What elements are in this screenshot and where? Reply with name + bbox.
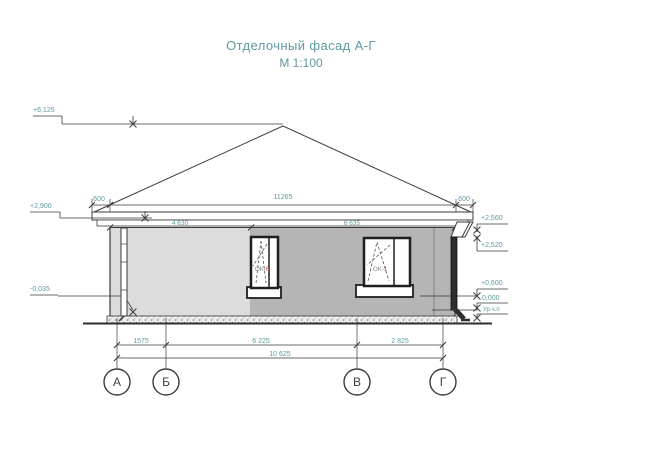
elevation-label-fascia-top: +2,560	[481, 215, 503, 223]
wall-left-section	[110, 227, 250, 316]
dim-wall-left-segment: 4 630	[155, 220, 205, 228]
elevation-label-window-sill: +0,600	[481, 280, 503, 288]
axis-bubble-v: В	[344, 369, 370, 395]
plinth-strip	[107, 316, 457, 323]
drawing-title: Отделочный фасад А-Г	[181, 38, 421, 53]
window-tag-ok6-suffix: -6	[264, 266, 270, 273]
window-tag-ok1-prefix: ОК	[373, 266, 382, 273]
drawing-scale: М 1:100	[181, 56, 421, 70]
axis-bubble-b: Б	[153, 369, 179, 395]
elevation-label-floor: 0,000	[482, 295, 500, 303]
drawing-linework	[0, 0, 663, 469]
window-tag-ok1-suffix: -1	[382, 266, 388, 273]
dim-building-span: 11265	[253, 194, 313, 202]
dim-a-b: 1575	[121, 338, 161, 346]
dim-total: 10 625	[258, 351, 302, 359]
elevation-label-floor-note: Ур.ч.п	[483, 306, 500, 314]
window-tag-ok6-prefix: ОК	[255, 266, 264, 273]
dim-v-g: 2 825	[380, 338, 420, 346]
elevation-mark-ridge	[33, 116, 283, 124]
dim-wall-right-segment: 6 635	[327, 220, 377, 228]
axis-bubble-g: Г	[430, 369, 456, 395]
facade-drawing-sheet: Отделочный фасад А-Г М 1:100 +6,125 +2,9…	[0, 0, 663, 469]
elevation-label-eave: +2,900	[30, 203, 52, 211]
window-tag-ok6: ОК-6	[247, 266, 277, 273]
downpipe-right	[451, 222, 473, 320]
dim-right-overhang: 600	[453, 196, 475, 204]
wall-right-section	[250, 227, 455, 316]
elevation-label-ridge: +6,125	[33, 107, 55, 115]
elevation-label-fascia-bottom: +2,520	[481, 242, 503, 250]
dim-b-v: 6 225	[241, 338, 281, 346]
axis-bubble-a: А	[104, 369, 130, 395]
fascia-band	[92, 212, 473, 226]
dim-left-overhang: 600	[88, 196, 110, 204]
elevation-label-blind-area: -0,035	[30, 286, 50, 294]
window-tag-ok1: ОК-1	[365, 266, 395, 273]
